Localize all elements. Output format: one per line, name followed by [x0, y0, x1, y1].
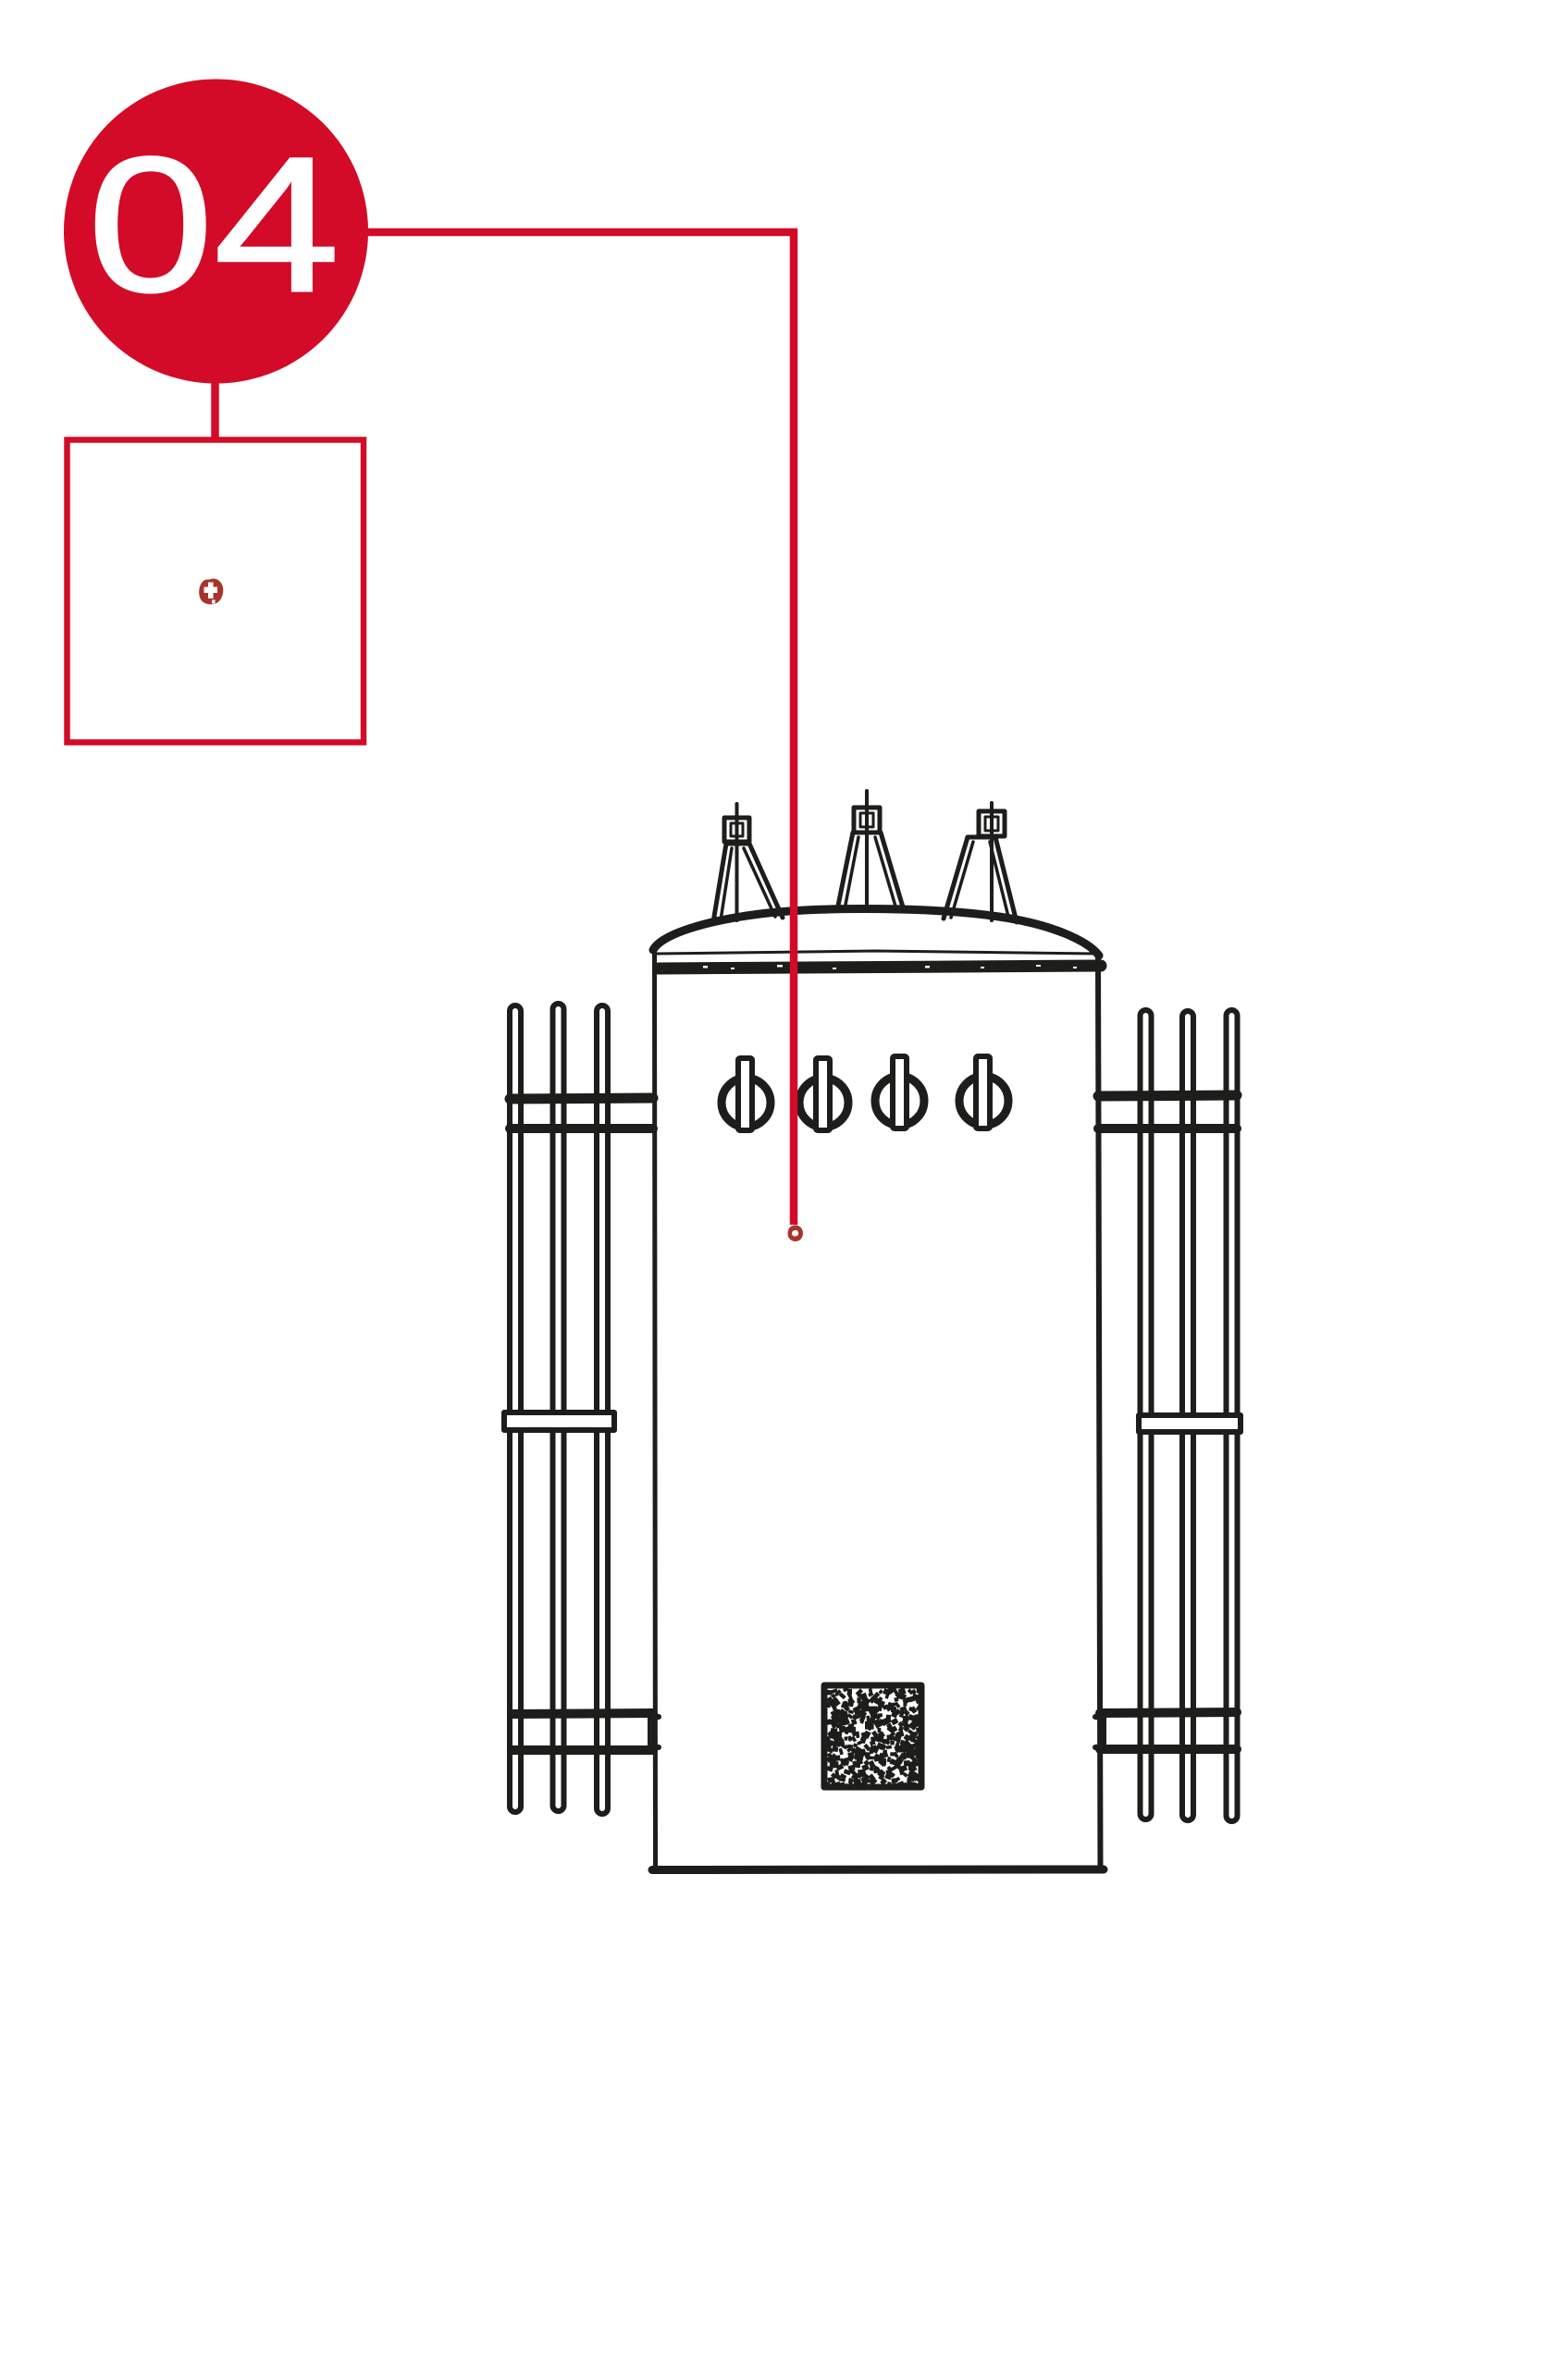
svg-text:04: 04 [87, 117, 340, 332]
